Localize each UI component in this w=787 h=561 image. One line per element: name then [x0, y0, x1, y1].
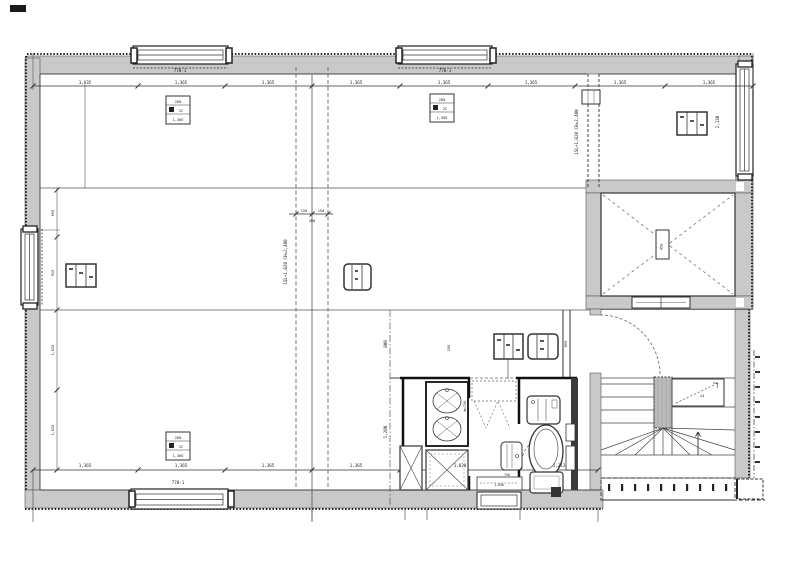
- dim-line-top: [31, 84, 756, 89]
- folding-door-dashes: [474, 401, 510, 428]
- stair-center-wall: [654, 377, 672, 428]
- stair-up-label: 14: [700, 394, 704, 398]
- tag-mark: [516, 349, 520, 351]
- dim-value: 1,365: [175, 80, 188, 85]
- window-jamb: [129, 491, 135, 507]
- cell-tag-top-right: [677, 112, 707, 135]
- window-jamb: [23, 226, 37, 232]
- window-jamb: [490, 48, 496, 63]
- scan-artifact-mark: [10, 5, 26, 12]
- dim-value: 1,820: [51, 425, 55, 436]
- door-swing-arc: [600, 315, 660, 375]
- note-center-line: 1SL+1,820 CH=2,400: [283, 239, 288, 285]
- note-partition-line: 1SL+1,820 CH=2,400: [574, 109, 579, 155]
- window-frame: [477, 492, 521, 509]
- dim-value: 1,820: [454, 463, 467, 468]
- washer-pan: [426, 450, 468, 490]
- dim-tick-mark: [755, 356, 760, 358]
- stair-corner-box: [737, 479, 763, 499]
- window-bottom: [129, 489, 234, 509]
- dim-tag-note: 250: [447, 345, 451, 352]
- round-tag-bath: [528, 334, 558, 359]
- ac-tag-2: 200 2C 1,365: [430, 94, 454, 122]
- elevator-wall-left: [586, 193, 601, 296]
- toilet-room-sink: [527, 396, 560, 424]
- elevator-wall-notch-top: [736, 182, 744, 191]
- window-dim: 770-1: [172, 480, 185, 485]
- window-frame: [131, 489, 228, 509]
- partition-tag-box: [582, 90, 600, 104]
- tag-mark: [497, 339, 501, 341]
- dim-texts-left: 600 910 1,820 1,820: [51, 210, 55, 436]
- washbasin-outline: [501, 442, 522, 470]
- tag-row: 1,365: [173, 118, 184, 122]
- window-jamb: [738, 174, 752, 180]
- window-jamb: [396, 48, 402, 63]
- corridor-cabinet: [472, 381, 516, 428]
- cell-tag-bath: [494, 334, 523, 359]
- tag-blob: [169, 443, 174, 448]
- sink-counter: [426, 382, 468, 446]
- dim-value: 1,635: [79, 80, 92, 85]
- dim-tick-mark: [755, 386, 760, 388]
- dim-toilet-wall: 800: [564, 341, 568, 348]
- window-jamb: [228, 491, 234, 507]
- floor-plan-drawing: 200 2C 1,365 200 2C 1,365 200 2C 1,365: [0, 0, 787, 561]
- stair-right-dim-ticks: [755, 356, 760, 463]
- riser-mark: [673, 484, 675, 491]
- elevator-wall-notch-bottom: [736, 298, 744, 307]
- tag-mark: [540, 348, 544, 350]
- dim-value: 1,365: [175, 463, 188, 468]
- dim-value: 1,365: [262, 80, 275, 85]
- tag-mark: [355, 270, 358, 272]
- tag-mark: [506, 344, 510, 346]
- corridor-washbasin: [501, 442, 522, 470]
- dim-bath-b: 1,200: [383, 425, 388, 438]
- left-appliance: [400, 446, 422, 490]
- dim-tick-mark: [755, 461, 760, 463]
- tag-row: 1,365: [173, 454, 184, 458]
- elevator-wall-top: [586, 180, 753, 193]
- tag-mark: [690, 120, 694, 122]
- dim-value: 300: [309, 219, 316, 223]
- tag-blob: [169, 107, 174, 112]
- ac-tag-3: 200 2C 1,365: [166, 432, 190, 460]
- tag-mark: [89, 276, 93, 278]
- dim-value: 600: [51, 210, 55, 217]
- tag-row: 2C: [179, 109, 183, 113]
- tag-outline: [66, 264, 96, 287]
- window-toilet-bottom: [477, 492, 521, 509]
- dim-value: 1,365: [614, 80, 627, 85]
- window-dim: 770-1: [439, 68, 452, 73]
- riser-mark: [712, 484, 714, 491]
- dim-value: 1,365: [438, 80, 451, 85]
- toilet-flush-unit: [551, 487, 561, 497]
- winder-line: [663, 428, 712, 455]
- tag-mark: [540, 340, 544, 342]
- tag-mark: [700, 124, 704, 126]
- stair-winders: [601, 428, 735, 455]
- riser-mark: [621, 484, 623, 491]
- dim-value: 1,365: [350, 80, 363, 85]
- paper-holder: [566, 424, 575, 441]
- cabinet-outline: [472, 381, 516, 401]
- ac-tag-1: 200 2C 1,365: [166, 96, 190, 124]
- dim-value: 1,365: [79, 463, 92, 468]
- tag-row: 200: [175, 100, 182, 104]
- tag-row: 1,365: [437, 116, 448, 120]
- riser-mark: [608, 484, 610, 491]
- dim-bath-a: 800: [383, 340, 388, 348]
- tag-mark: [680, 116, 684, 118]
- winder-line: [663, 428, 735, 430]
- dim-tick-mark: [755, 416, 760, 418]
- window-jamb: [738, 61, 752, 67]
- floor-plan-canvas: 200 2C 1,365 200 2C 1,365 200 2C 1,365: [0, 0, 787, 561]
- window-right: [736, 61, 753, 180]
- tag-outline: [528, 334, 558, 359]
- elevator-tag-text: 450: [660, 244, 664, 251]
- dim-corridor: W=750: [463, 401, 467, 412]
- tag-mark: [69, 268, 73, 270]
- riser-mark: [725, 484, 727, 491]
- riser-mark: [660, 484, 662, 491]
- tag-outline: [494, 334, 523, 359]
- tag-row: 200: [175, 436, 182, 440]
- tag-row: 2C: [443, 107, 447, 111]
- window-jamb: [23, 303, 37, 309]
- threshold-label: 1,650: [494, 483, 504, 487]
- elevator-shaft: [601, 193, 735, 308]
- dim-tick-mark: [755, 401, 760, 403]
- riser-mark: [686, 484, 688, 491]
- dim-value: 150: [318, 209, 325, 213]
- tag-outline: [344, 264, 371, 290]
- elevator-wall-right: [735, 193, 753, 296]
- dim-tick-mark: [755, 446, 760, 448]
- dim-right-window: 2,130: [715, 115, 720, 128]
- tag-mark: [79, 272, 83, 274]
- tag-blob: [433, 105, 438, 110]
- dim-value: 1,213: [553, 463, 566, 468]
- washbasin-label: 750: [504, 473, 510, 477]
- riser-number-marks: [608, 484, 727, 491]
- dim-tick-mark: [755, 431, 760, 433]
- stair-wall-right: [735, 309, 750, 478]
- tag-row: 2C: [179, 445, 183, 449]
- dim-texts-center: 150 150 300: [301, 209, 325, 223]
- stair-wall-left-upper: [590, 309, 601, 315]
- dim-tick-mark: [755, 371, 760, 373]
- cell-tag-left: [66, 264, 96, 287]
- round-tag-center: [344, 264, 371, 290]
- wall-remote: [566, 446, 575, 470]
- tag-row: 200: [439, 98, 446, 102]
- dim-value: 1,365: [262, 463, 275, 468]
- riser-mark: [634, 484, 636, 491]
- toilet: [529, 425, 563, 497]
- dim-value: 910: [51, 270, 55, 277]
- dim-value: 150: [301, 209, 308, 213]
- dim-value: 1,820: [51, 345, 55, 356]
- riser-mark: [699, 484, 701, 491]
- window-jamb: [226, 48, 232, 63]
- tag-mark: [355, 278, 358, 280]
- dim-value: 1,365: [350, 463, 363, 468]
- window-dim: 770-1: [174, 68, 187, 73]
- tag-outline: [677, 112, 707, 135]
- riser-mark: [647, 484, 649, 491]
- window-jamb: [131, 48, 137, 63]
- dim-value: 1,365: [703, 80, 716, 85]
- dim-value: 1,365: [525, 80, 538, 85]
